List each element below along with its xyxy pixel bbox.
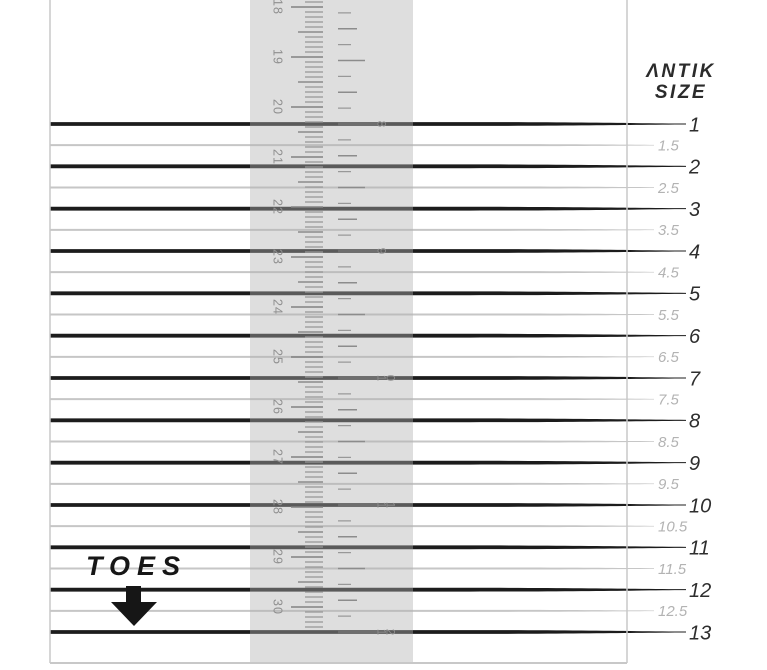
toes-label: TOES <box>86 552 187 580</box>
half-size-label: 10.5 <box>658 519 688 536</box>
cm-scale-label: 20 <box>271 99 285 115</box>
full-size-label: 6 <box>689 326 701 348</box>
brand-line-antik: ΛNTIK <box>611 61 751 82</box>
cm-scale-label: 28 <box>271 499 285 515</box>
half-size-label: 3.5 <box>658 222 680 239</box>
cm-scale-label: 30 <box>271 599 285 615</box>
brand-logo: ΛNTIK SIZE <box>611 61 751 103</box>
cm-scale-label: 29 <box>271 549 285 565</box>
brand-line-size: SIZE <box>611 82 751 103</box>
inch-scale-label: 9 <box>374 248 386 254</box>
full-size-label: 12 <box>689 580 711 602</box>
cm-scale-label: 25 <box>271 349 285 365</box>
inch-scale-label: 0 <box>383 375 395 381</box>
full-size-label: 11 <box>689 538 710 560</box>
half-size-label: 6.5 <box>658 349 680 366</box>
half-size-label: 7.5 <box>658 392 680 409</box>
full-size-label: 4 <box>689 241 700 263</box>
cm-scale-label: 22 <box>271 199 285 215</box>
half-size-label: 8.5 <box>658 434 680 451</box>
toes-arrow-down-icon <box>111 602 157 626</box>
inch-scale-label: 8 <box>374 121 386 127</box>
full-size-label: 13 <box>689 622 711 644</box>
full-size-label: 1 <box>689 114 700 136</box>
inch-scale-label: 1 <box>383 502 395 508</box>
cm-scale-label: 26 <box>271 399 285 415</box>
half-size-label: 4.5 <box>658 265 680 282</box>
cm-scale-label: 19 <box>271 49 285 65</box>
shoe-size-chart: 18192021222324252627282930891011121.52.5… <box>0 0 767 670</box>
half-size-label: 5.5 <box>658 307 680 324</box>
cm-scale-label: 21 <box>271 149 285 165</box>
full-size-label: 10 <box>689 495 711 517</box>
half-size-label: 12.5 <box>658 603 688 620</box>
half-size-label: 1.5 <box>658 138 680 155</box>
full-size-label: 5 <box>689 284 701 306</box>
cm-scale-label: 24 <box>271 299 285 315</box>
cm-scale-label: 23 <box>271 249 285 265</box>
full-size-label: 2 <box>688 157 700 179</box>
full-size-label: 9 <box>689 453 700 475</box>
cm-scale-label: 27 <box>271 449 285 465</box>
full-size-label: 7 <box>689 368 701 390</box>
half-size-label: 9.5 <box>658 476 680 493</box>
half-size-label: 11.5 <box>658 561 687 578</box>
cm-scale-label: 18 <box>271 0 285 15</box>
full-size-label: 8 <box>689 411 700 433</box>
full-size-label: 3 <box>689 199 700 221</box>
inch-scale-label: 2 <box>383 629 395 635</box>
half-size-label: 2.5 <box>657 180 680 197</box>
